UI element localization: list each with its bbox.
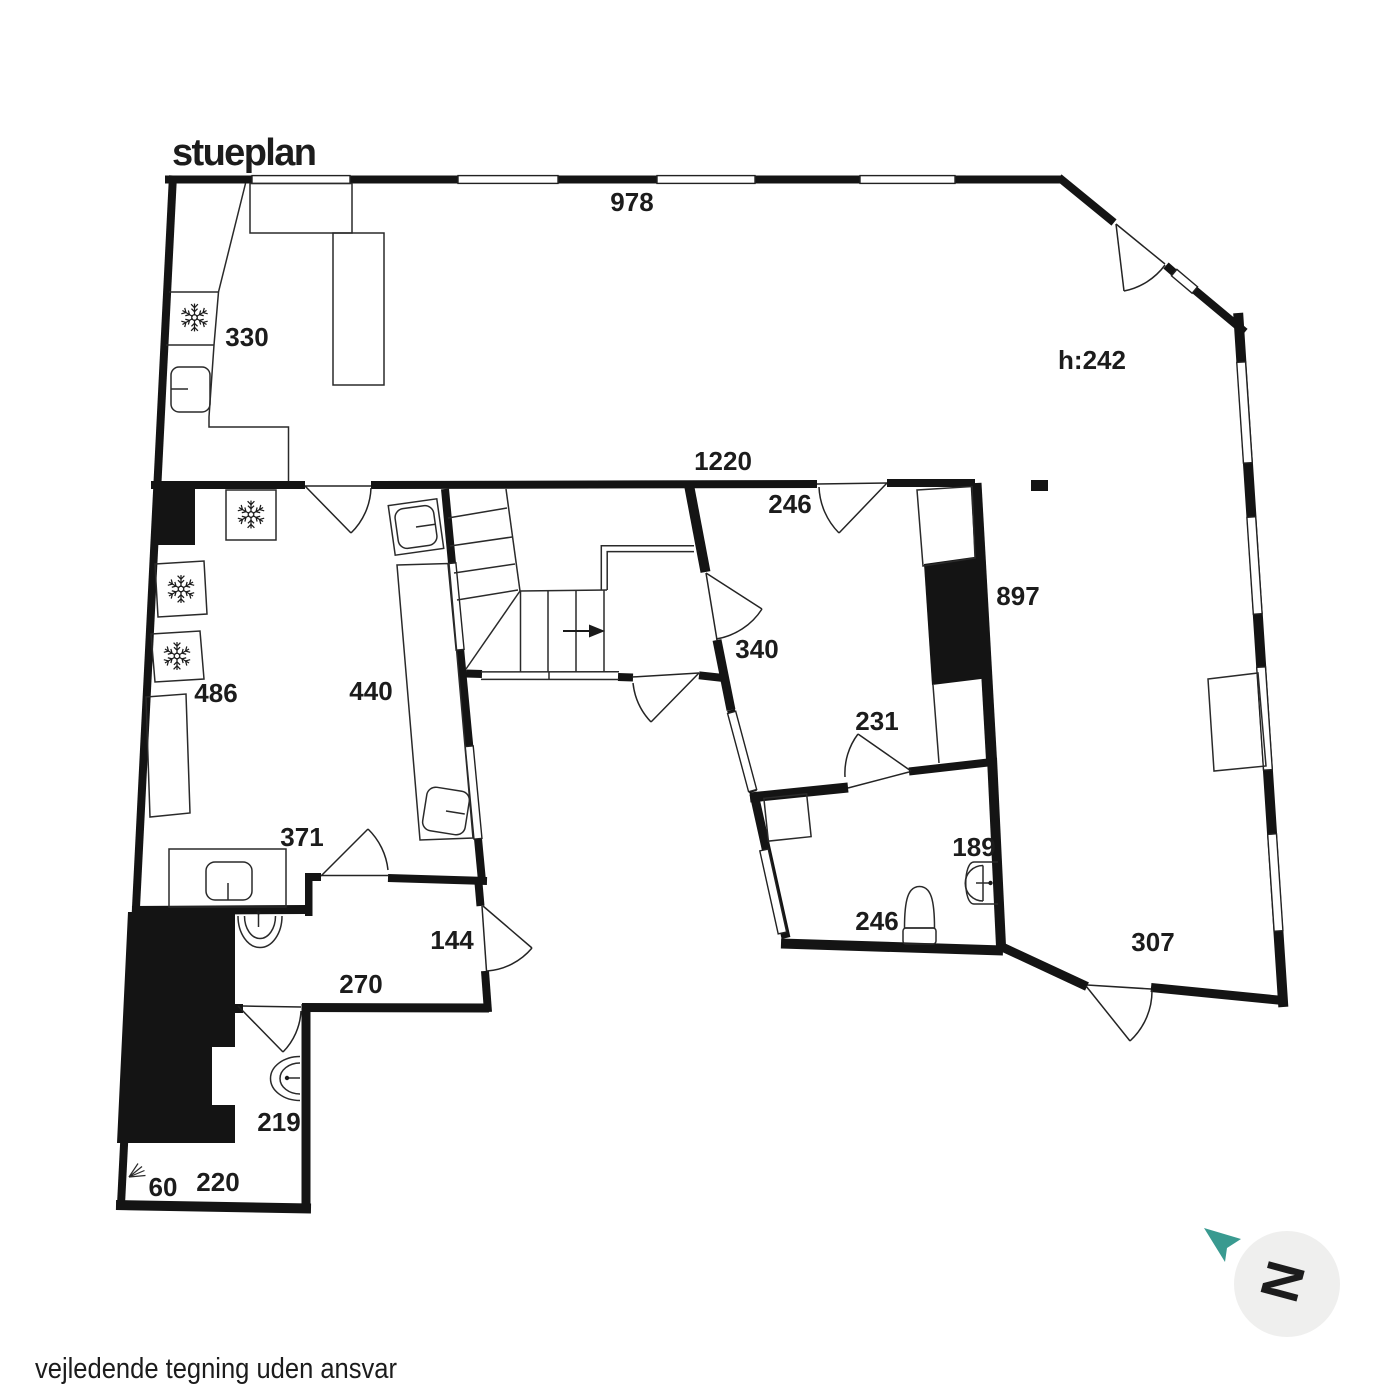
svg-text:189: 189 bbox=[952, 832, 995, 862]
svg-text:371: 371 bbox=[280, 822, 323, 852]
svg-text:h:242: h:242 bbox=[1058, 345, 1126, 375]
svg-text:340: 340 bbox=[735, 634, 778, 664]
svg-text:220: 220 bbox=[196, 1167, 239, 1197]
svg-text:486: 486 bbox=[194, 678, 237, 708]
svg-text:246: 246 bbox=[768, 489, 811, 519]
svg-text:897: 897 bbox=[996, 581, 1039, 611]
svg-text:440: 440 bbox=[349, 676, 392, 706]
svg-text:stueplan: stueplan bbox=[172, 132, 317, 174]
svg-text:60: 60 bbox=[149, 1172, 178, 1202]
svg-text:144: 144 bbox=[430, 925, 474, 955]
svg-text:307: 307 bbox=[1131, 927, 1174, 957]
svg-text:270: 270 bbox=[339, 969, 382, 999]
svg-text:978: 978 bbox=[610, 187, 653, 217]
svg-text:vejledende tegning uden ansvar: vejledende tegning uden ansvar bbox=[35, 1353, 397, 1385]
svg-text:219: 219 bbox=[257, 1107, 300, 1137]
svg-text:1220: 1220 bbox=[694, 446, 752, 476]
svg-text:246: 246 bbox=[855, 906, 898, 936]
svg-text:330: 330 bbox=[225, 322, 268, 352]
svg-text:231: 231 bbox=[855, 706, 898, 736]
